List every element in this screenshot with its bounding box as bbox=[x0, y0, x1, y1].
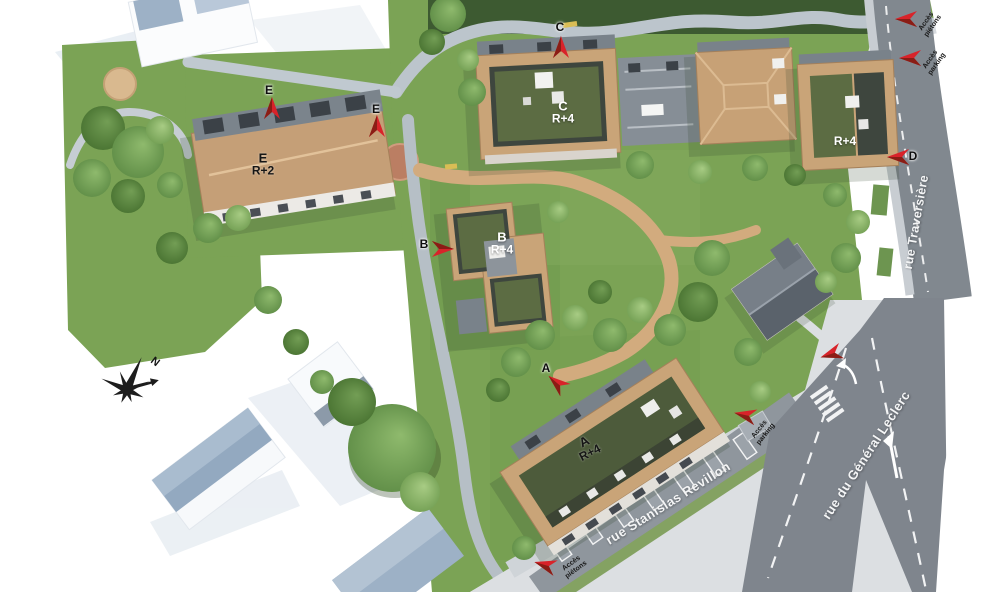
marker-e2-arrow bbox=[368, 114, 386, 138]
marker-c-arrow bbox=[552, 35, 570, 59]
building-d bbox=[785, 50, 900, 185]
marker-e1-arrow bbox=[263, 96, 281, 120]
site-plan: C R+4 B R+4 R+4 E R+2 A R+4 C E E B A D … bbox=[0, 0, 1000, 592]
site-render bbox=[0, 0, 1000, 592]
access-parking-top-arrow bbox=[898, 49, 922, 67]
building-c bbox=[462, 34, 622, 176]
marker-b-arrow bbox=[431, 240, 455, 258]
building-mid bbox=[683, 38, 797, 157]
access-pietons-top-arrow bbox=[894, 10, 918, 28]
marker-d-arrow bbox=[886, 148, 910, 166]
